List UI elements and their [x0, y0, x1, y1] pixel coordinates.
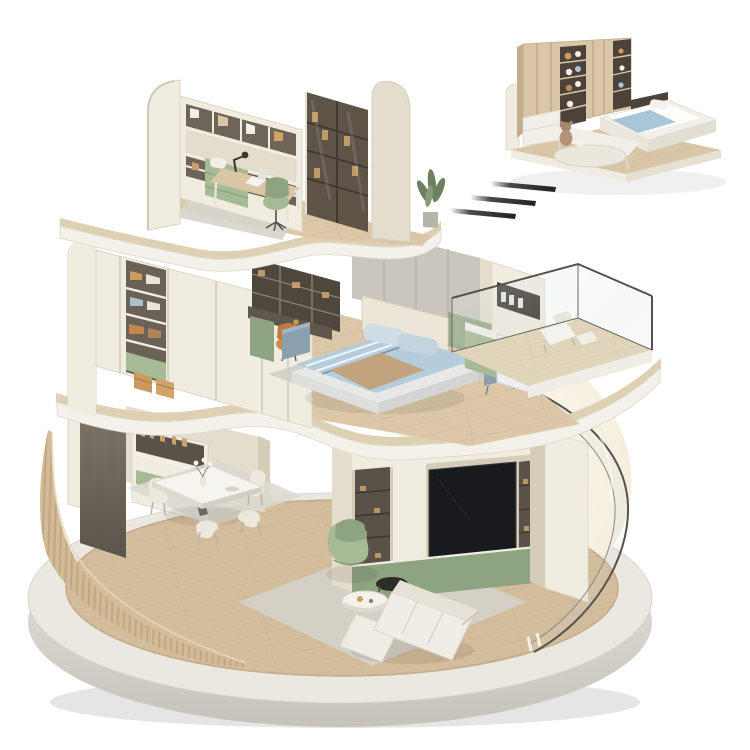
television	[429, 462, 516, 557]
module-round-rug	[554, 145, 626, 167]
wardrobe-side-shelf	[613, 39, 631, 110]
tv-unit-center-panel	[393, 463, 426, 561]
open-shelves-clothes	[126, 260, 166, 384]
open-toy-shelves	[560, 45, 586, 127]
motion-dash	[470, 195, 536, 206]
tv-unit-right-pillar	[545, 430, 588, 602]
potted-plant	[414, 169, 447, 228]
kids-bedroom-module	[506, 38, 726, 195]
desk-green-cabinet	[250, 316, 274, 362]
top-floor-study	[148, 80, 448, 246]
glass-door-bookcase	[306, 92, 368, 232]
render-stage	[0, 0, 750, 750]
isometric-home-render	[0, 0, 750, 750]
bedroom-left-wall	[68, 242, 96, 416]
study-right-wall	[372, 81, 410, 242]
motion-dashes	[450, 181, 556, 219]
motion-dash	[450, 208, 516, 219]
study-left-wall	[148, 80, 180, 230]
